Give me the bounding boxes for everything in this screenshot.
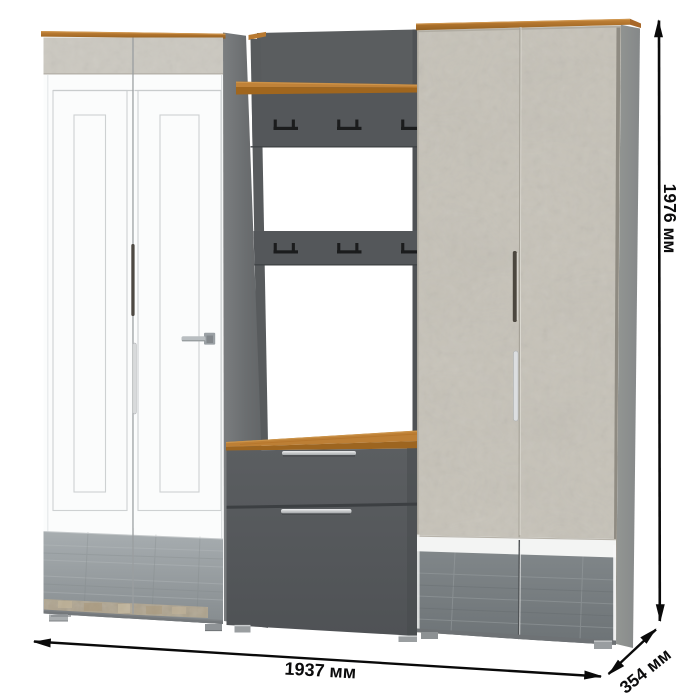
svg-text:1937 мм: 1937 мм — [284, 659, 357, 683]
svg-text:1976 мм: 1976 мм — [660, 184, 680, 254]
